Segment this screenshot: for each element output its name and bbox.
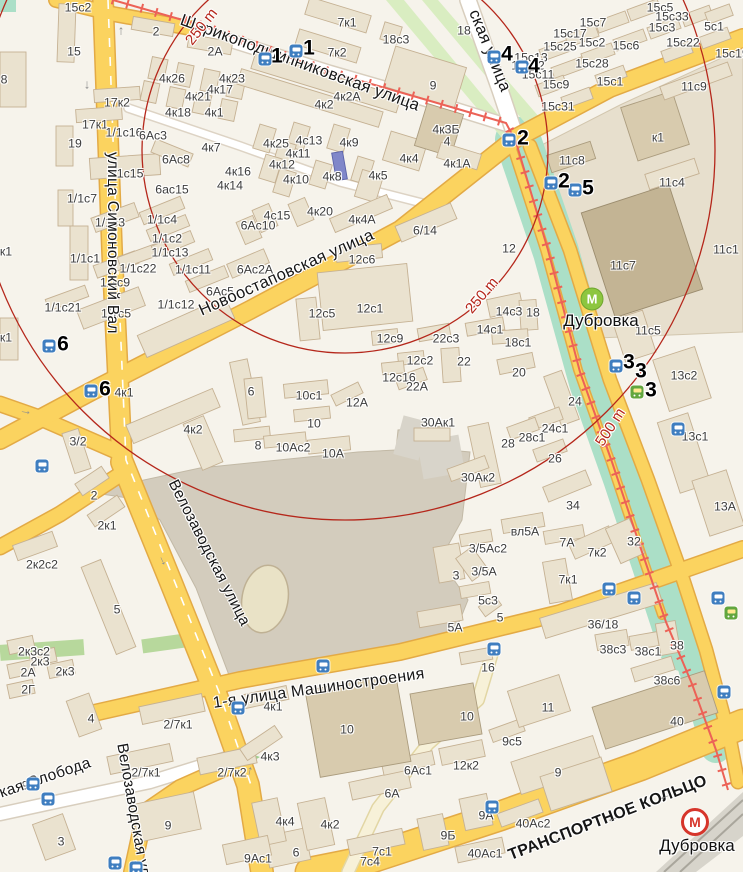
metro-station-icon[interactable]: М <box>681 808 709 836</box>
bus-stop-icon[interactable] <box>85 385 98 398</box>
bus-stop-icon[interactable] <box>290 45 303 58</box>
map-canvas[interactable] <box>0 0 743 872</box>
bus-stop-icon[interactable] <box>43 340 56 353</box>
bus-stop-icon[interactable] <box>486 801 499 814</box>
bus-stop-icon[interactable] <box>503 134 516 147</box>
bus-stop-icon[interactable] <box>130 862 143 872</box>
bus-stop-icon[interactable] <box>109 857 122 870</box>
metro-station-icon[interactable]: М <box>581 288 604 311</box>
bus-stop-icon[interactable] <box>42 793 55 806</box>
bus-stop-icon[interactable] <box>27 778 40 791</box>
bus-stop-icon[interactable] <box>317 660 330 673</box>
bus-stop-icon[interactable] <box>712 592 725 605</box>
bus-stop-icon[interactable] <box>718 686 731 699</box>
bus-stop-icon[interactable] <box>603 583 616 596</box>
bus-stop-icon[interactable] <box>488 51 501 64</box>
bus-stop-icon[interactable] <box>610 360 623 373</box>
tram-stop-icon[interactable] <box>725 607 738 620</box>
tram-stop-icon[interactable] <box>631 386 644 399</box>
bus-stop-icon[interactable] <box>569 184 582 197</box>
bus-stop-icon[interactable] <box>672 423 685 436</box>
bus-stop-icon[interactable] <box>36 460 49 473</box>
bus-stop-icon[interactable] <box>232 702 245 715</box>
bus-stop-icon[interactable] <box>259 53 272 66</box>
bus-stop-icon[interactable] <box>545 177 558 190</box>
bus-stop-icon[interactable] <box>488 643 501 656</box>
map-viewport[interactable]: 15с215282А4к264к234к174к214к184к117к217к… <box>0 0 743 872</box>
bus-stop-icon[interactable] <box>628 592 641 605</box>
bus-stop-icon[interactable] <box>516 61 529 74</box>
